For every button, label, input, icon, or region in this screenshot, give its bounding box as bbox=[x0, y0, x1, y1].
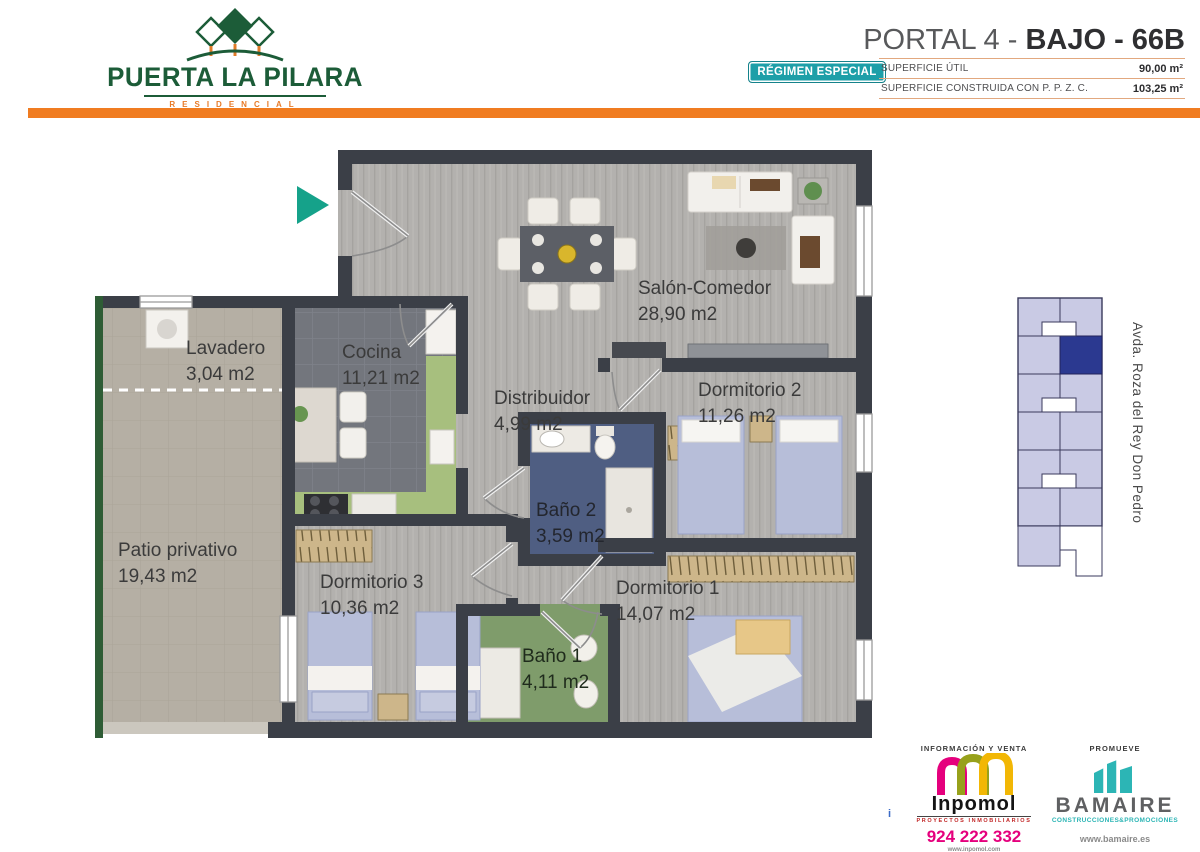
room-area: 4,11 m2 bbox=[522, 670, 589, 696]
room-name: Dormitorio 3 bbox=[320, 570, 423, 596]
sales-logo-block: INFORMACIÓN Y VENTA Inpomol PROYECTOS IN… bbox=[903, 744, 1045, 852]
room-label-dormitorio-3: Dormitorio 3 10,36 m2 bbox=[320, 570, 423, 622]
developer-heading: PROMUEVE bbox=[1090, 744, 1141, 753]
room-area: 19,43 m2 bbox=[118, 564, 237, 590]
room-area: 3,04 m2 bbox=[186, 362, 265, 388]
street-label: Avda. Roza del Rey Don Pedro bbox=[1130, 322, 1145, 582]
room-label-dormitorio-2: Dormitorio 2 11,26 m2 bbox=[698, 378, 801, 430]
highlighted-unit bbox=[1060, 336, 1102, 374]
bath2-door-threshold bbox=[518, 466, 530, 518]
location-minimap bbox=[1018, 298, 1102, 576]
sales-heading: INFORMACIÓN Y VENTA bbox=[921, 744, 1028, 753]
room-area: 4,99 m2 bbox=[494, 412, 590, 438]
bamaire-tagline: CONSTRUCCIONES&PROMOCIONES bbox=[1052, 817, 1178, 824]
room-name: Distribuidor bbox=[494, 386, 590, 412]
room-label-patio-privativo: Patio privativo 19,43 m2 bbox=[118, 538, 237, 590]
floor-plan-svg bbox=[0, 0, 1200, 852]
bamaire-wordmark: BAMAIRE bbox=[1056, 794, 1175, 818]
room-name: Dormitorio 1 bbox=[616, 576, 719, 602]
room-label-lavadero: Lavadero 3,04 m2 bbox=[186, 336, 265, 388]
room-name: Dormitorio 2 bbox=[698, 378, 801, 404]
sales-phone: 924 222 332 bbox=[927, 827, 1022, 847]
room-label-bano-2: Baño 2 3,59 m2 bbox=[536, 498, 605, 550]
room-name: Patio privativo bbox=[118, 538, 237, 564]
room-name: Salón-Comedor bbox=[638, 276, 771, 302]
room-label-dormitorio-1: Dormitorio 1 14,07 m2 bbox=[616, 576, 719, 628]
brochure-page: PUERTA LA PILARA RESIDENCIAL PORTAL 4 - … bbox=[0, 0, 1200, 852]
bamaire-buildings-icon bbox=[1091, 757, 1139, 795]
room-name: Baño 2 bbox=[536, 498, 605, 524]
room-label-bano-1: Baño 1 4,11 m2 bbox=[522, 644, 589, 696]
developer-website: www.bamaire.es bbox=[1080, 834, 1150, 844]
room-area: 11,26 m2 bbox=[698, 404, 801, 430]
sales-website: www.inpomol.com bbox=[948, 847, 1001, 852]
inpomol-arches-icon bbox=[933, 753, 1015, 795]
room-label-cocina: Cocina 11,21 m2 bbox=[342, 340, 420, 392]
inpomol-tagline: PROYECTOS INMOBILIARIOS bbox=[917, 816, 1032, 824]
room-area: 10,36 m2 bbox=[320, 596, 423, 622]
room-area: 28,90 m2 bbox=[638, 302, 771, 328]
room-name: Cocina bbox=[342, 340, 420, 366]
info-marker: i bbox=[888, 808, 891, 820]
room-label-salon-comedor: Salón-Comedor 28,90 m2 bbox=[638, 276, 771, 328]
room-area: 11,21 m2 bbox=[342, 366, 420, 392]
room-label-distribuidor: Distribuidor 4,99 m2 bbox=[494, 386, 590, 438]
room-area: 14,07 m2 bbox=[616, 602, 719, 628]
room-area: 3,59 m2 bbox=[536, 524, 605, 550]
developer-logo-block: PROMUEVE BAMAIRE CONSTRUCCIONES&PROMOCIO… bbox=[1042, 744, 1188, 844]
room-name: Lavadero bbox=[186, 336, 265, 362]
room-name: Baño 1 bbox=[522, 644, 589, 670]
inpomol-wordmark: Inpomol bbox=[932, 793, 1017, 816]
